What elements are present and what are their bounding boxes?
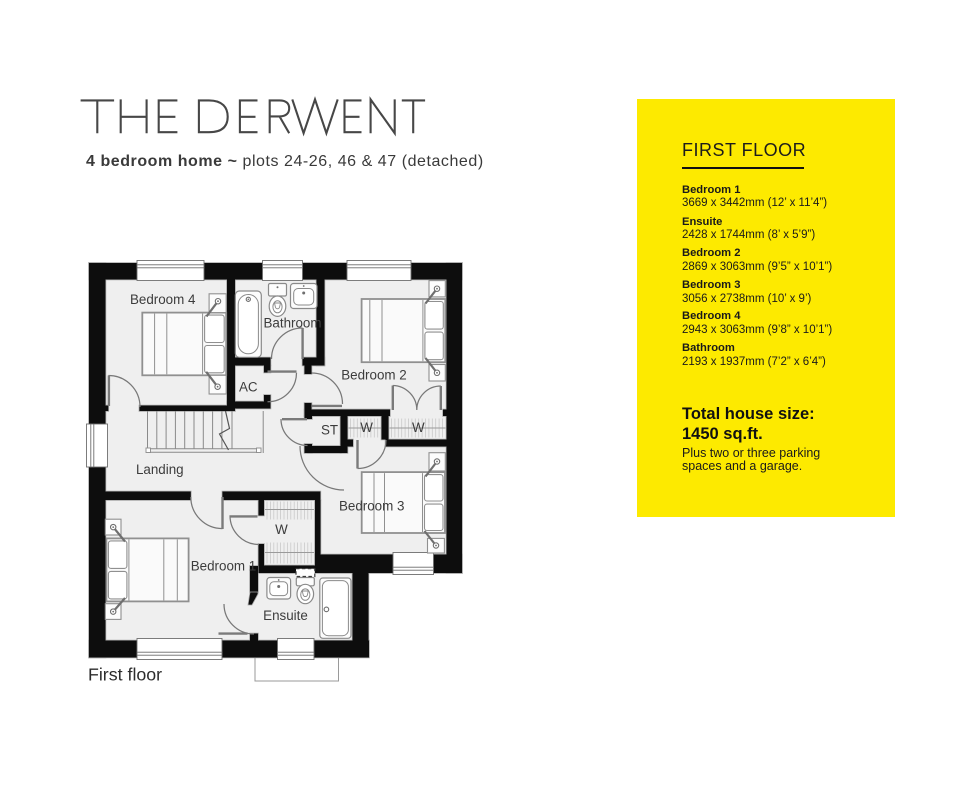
svg-text:ST: ST — [321, 423, 338, 438]
svg-text:Bedroom 3: Bedroom 3 — [339, 499, 405, 514]
svg-text:First floor: First floor — [88, 664, 162, 684]
svg-text:Bathroom: Bathroom — [263, 315, 321, 330]
svg-text:Landing: Landing — [136, 462, 184, 477]
svg-text:W: W — [360, 420, 373, 435]
svg-text:Ensuite: Ensuite — [263, 608, 308, 623]
svg-text:AC: AC — [239, 379, 258, 394]
svg-text:W: W — [275, 522, 288, 537]
svg-text:W: W — [412, 420, 425, 435]
svg-text:Bedroom 1: Bedroom 1 — [191, 559, 257, 574]
svg-text:Bedroom 4: Bedroom 4 — [130, 292, 196, 307]
svg-text:Bedroom 2: Bedroom 2 — [341, 367, 407, 382]
